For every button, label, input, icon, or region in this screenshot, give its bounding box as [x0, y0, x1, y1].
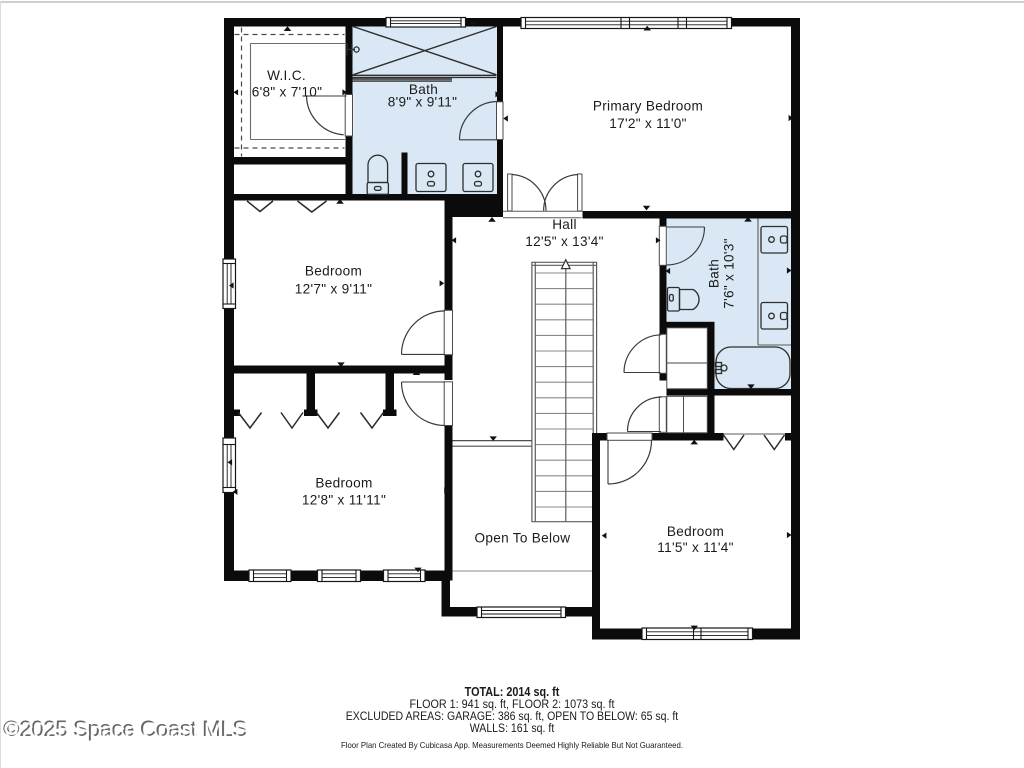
svg-text:Bedroom: Bedroom: [315, 476, 372, 491]
svg-text:Open To Below: Open To Below: [474, 531, 570, 546]
svg-text:7'6" x 10'3": 7'6" x 10'3": [721, 238, 736, 309]
svg-text:11'5" x 11'4": 11'5" x 11'4": [657, 540, 733, 555]
svg-text:Bedroom: Bedroom: [667, 524, 724, 539]
svg-text:Bath: Bath: [706, 259, 721, 288]
svg-text:12'5" x 13'4": 12'5" x 13'4": [525, 234, 603, 249]
svg-text:Bedroom: Bedroom: [305, 264, 362, 279]
svg-text:Hall: Hall: [552, 217, 577, 232]
svg-text:12'8" x 11'11": 12'8" x 11'11": [302, 493, 386, 508]
svg-text:Primary Bedroom: Primary Bedroom: [593, 99, 703, 114]
svg-text:12'7" x 9'11": 12'7" x 9'11": [295, 282, 372, 297]
svg-text:6'8" x 7'10": 6'8" x 7'10": [252, 85, 323, 100]
svg-text:17'2" x 11'0": 17'2" x 11'0": [609, 116, 686, 131]
svg-text:W.I.C.: W.I.C.: [267, 68, 306, 83]
svg-text:8'9" x 9'11": 8'9" x 9'11": [388, 95, 458, 110]
